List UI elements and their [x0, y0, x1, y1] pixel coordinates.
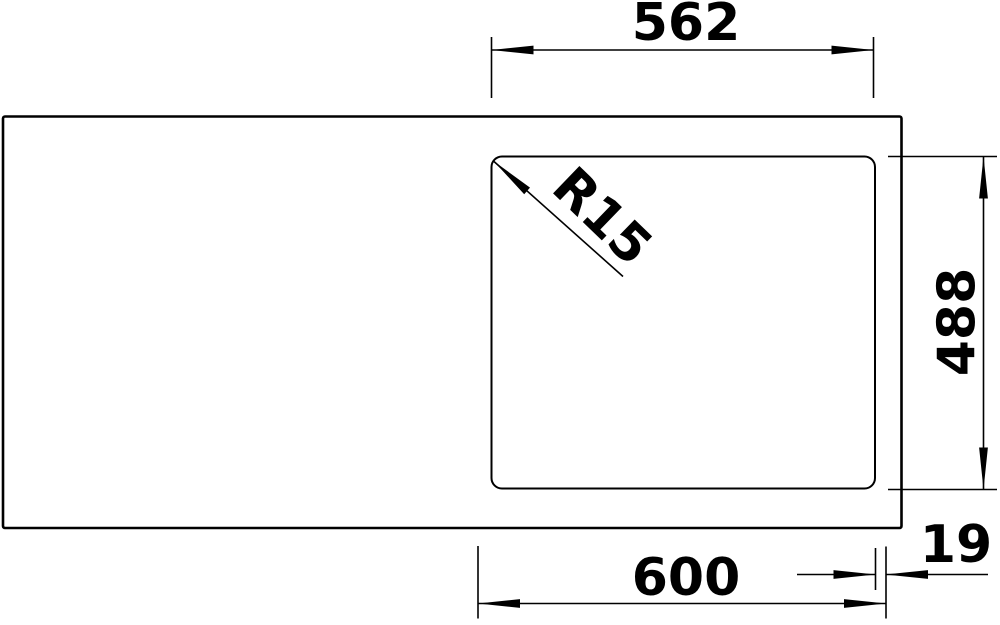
arrowhead-left	[492, 46, 534, 55]
dim-edge-offset: 19	[797, 515, 992, 590]
arrowhead-right	[832, 46, 874, 55]
arrowhead-bottom	[979, 448, 988, 490]
dim-label-bottom-width: 600	[632, 548, 741, 608]
radius-label: R15	[541, 156, 664, 277]
arrowhead-inward-left	[834, 570, 876, 579]
sink-outline-rect	[3, 117, 902, 529]
arrowhead-leader	[494, 161, 531, 194]
dim-label-edge-offset: 19	[920, 515, 992, 575]
dim-label-right-height: 488	[928, 268, 988, 377]
arrowhead-top	[979, 157, 988, 199]
radius-callout: R15	[494, 156, 664, 277]
arrowhead-right	[844, 599, 886, 608]
drawing-canvas: 562 488 600 19	[0, 0, 1000, 625]
arrowhead-left	[478, 599, 520, 608]
dim-right-height: 488	[888, 157, 997, 490]
dim-top-width: 562	[492, 0, 874, 98]
sink-outline-group	[3, 117, 902, 529]
dim-bottom-width: 600	[478, 546, 886, 619]
dim-label-top-width: 562	[632, 0, 741, 53]
dimension-drawing: 562 488 600 19	[0, 0, 1000, 625]
